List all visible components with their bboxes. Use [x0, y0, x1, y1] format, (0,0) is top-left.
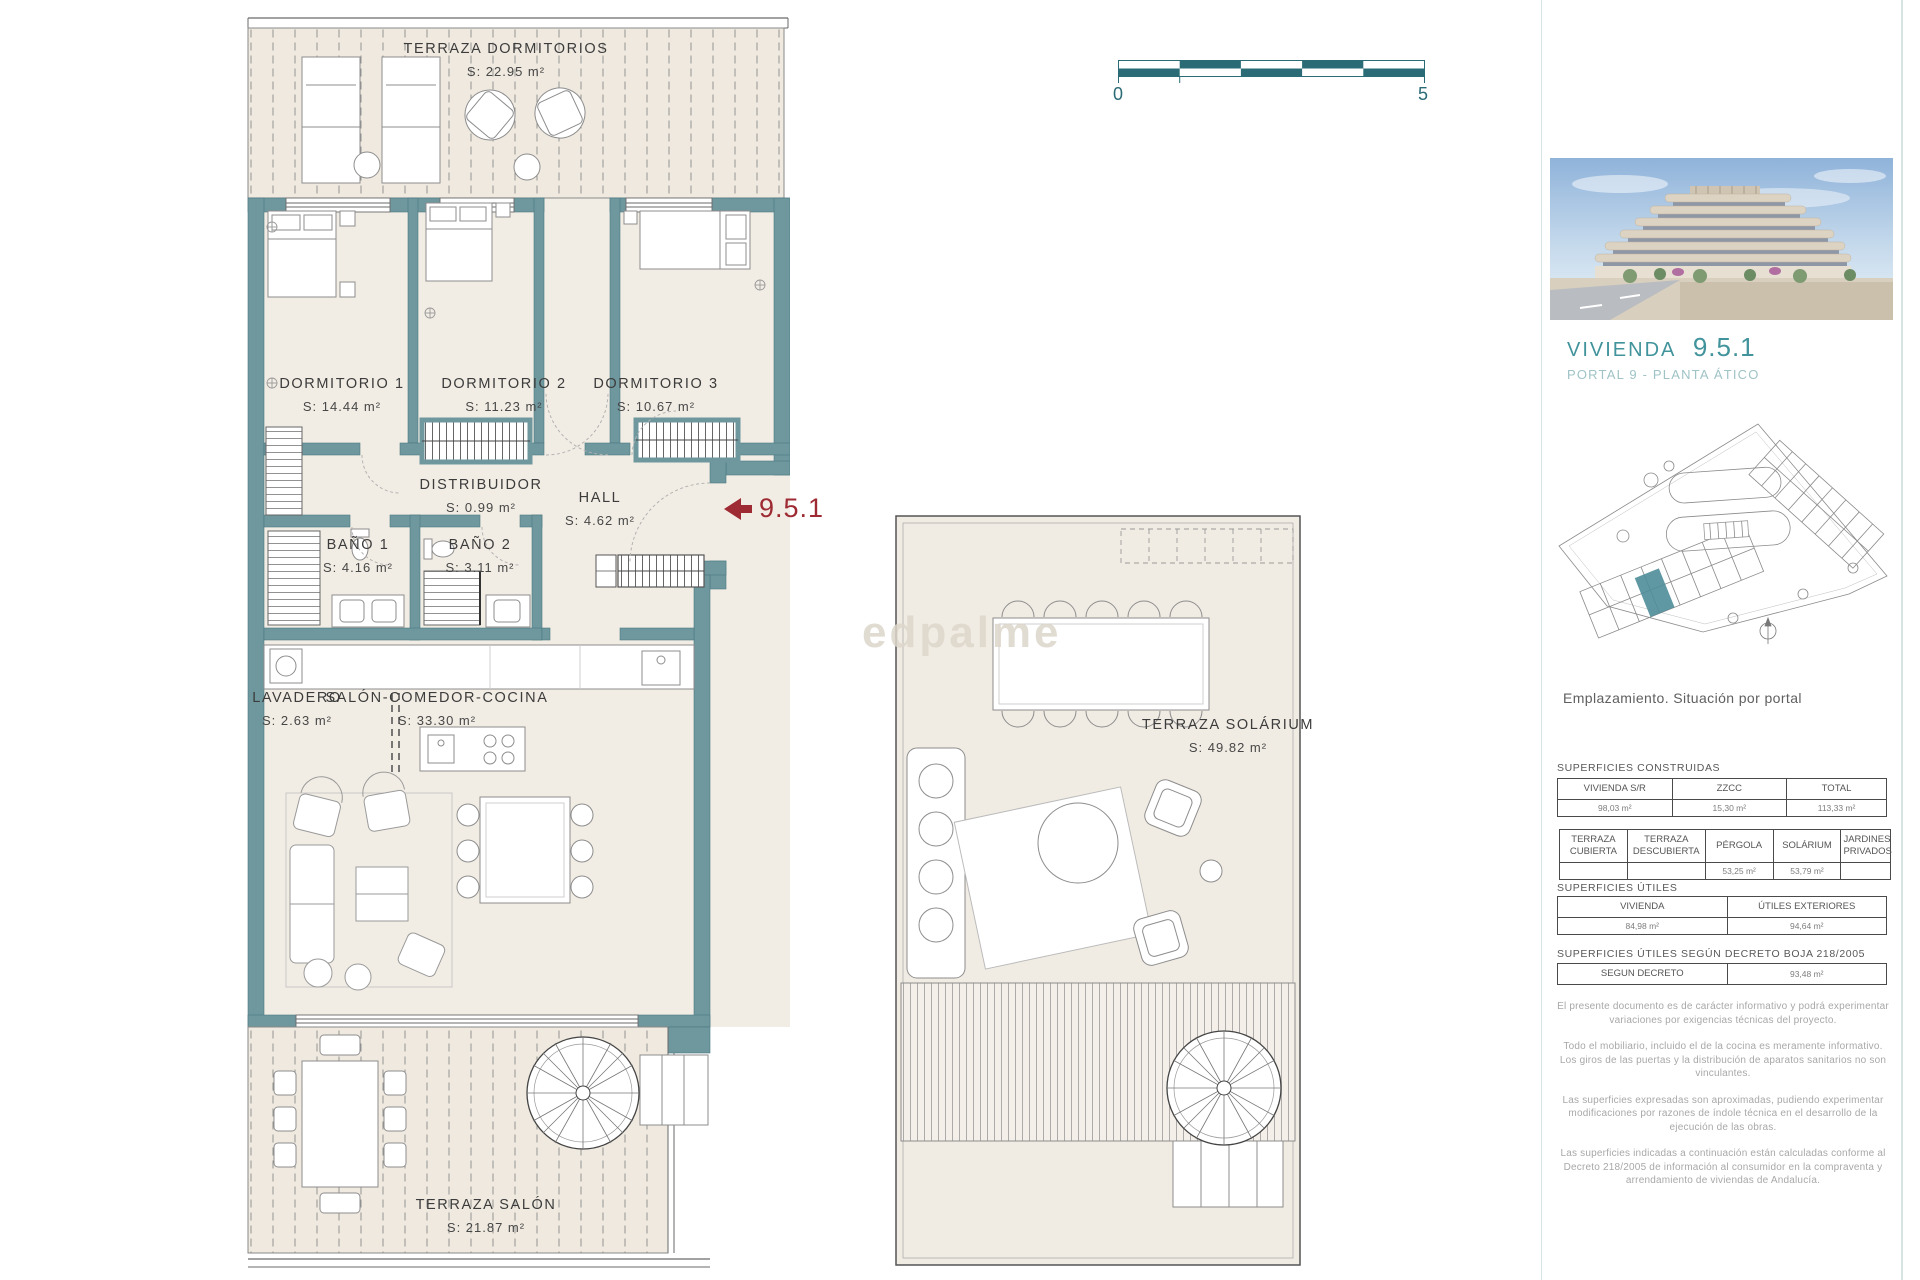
building-photo	[1550, 158, 1893, 320]
room-label-terraza-dormitorios: TERRAZA DORMITORIOS S: 22.95 m²	[404, 42, 609, 78]
solarium-bench	[1173, 1141, 1283, 1207]
entrance-marker: 9.5.1	[724, 493, 824, 524]
room-label-hall: HALL S: 4.62 m²	[565, 491, 635, 527]
table-header-cell: JARDINES PRIVADOS	[1841, 830, 1891, 863]
room-label-dormitorio-3: DORMITORIO 3 S: 10.67 m²	[593, 377, 718, 413]
room-label-terraza-salon: TERRAZA SALÓN S: 21.87 m²	[416, 1198, 557, 1234]
section-title-decreto: SUPERFICIES ÚTILES SEGÚN DECRETO BOJA 21…	[1557, 948, 1865, 960]
table-row: TERRAZA CUBIERTA TERRAZA DESCUBIERTA PÉR…	[1560, 830, 1891, 863]
disclaimer-paragraph: Las superficies expresadas son aproximad…	[1554, 1094, 1892, 1135]
main-floor-plan	[240, 15, 790, 1271]
table-value-cell: 53,25 m²	[1705, 862, 1773, 879]
table-header-cell: VIVIENDA	[1558, 897, 1728, 918]
room-label-dormitorio-1: DORMITORIO 1 S: 14.44 m²	[279, 377, 404, 413]
scale-min-label: 0	[1113, 84, 1123, 105]
scale-bar: 0 5	[1118, 58, 1425, 110]
unit-subtitle: PORTAL 9 - PLANTA ÁTICO	[1567, 368, 1760, 381]
table-header-cell: VIVIENDA S/R	[1558, 779, 1673, 800]
room-label-salon: SALÓN-COMEDOR-COCINA S: 33.30 m²	[326, 691, 549, 727]
site-plan-caption: Emplazamiento. Situación por portal	[1563, 690, 1802, 706]
scale-max-label: 5	[1418, 84, 1428, 105]
room-label-bano-1: BAÑO 1 S: 4.16 m²	[323, 538, 393, 574]
section-title-construidas: SUPERFICIES CONSTRUIDAS	[1557, 762, 1720, 774]
sidebar-left-border	[1541, 0, 1542, 1280]
table-row: VIVIENDA ÚTILES EXTERIORES	[1558, 897, 1887, 918]
table-header-cell: SEGUN DECRETO	[1558, 964, 1728, 985]
unit-title: VIVIENDA	[1567, 340, 1676, 360]
sheet-right-border	[1901, 0, 1903, 1280]
plan-sheet: { "scale_bar": { "min": "0", "max": "5" …	[0, 0, 1920, 1280]
disclaimer-block: El presente documento es de carácter inf…	[1554, 1000, 1892, 1201]
entrance-arrow-tail	[741, 505, 752, 513]
salon-window	[296, 1015, 638, 1027]
table-row: 98,03 m² 15,30 m² 113,33 m²	[1558, 799, 1887, 816]
room-label-terraza-solarium: TERRAZA SOLÁRIUM S: 49.82 m²	[1142, 718, 1314, 754]
table-value-cell: 53,79 m²	[1773, 862, 1841, 879]
kitchen-island	[420, 727, 525, 771]
table-construidas-2: TERRAZA CUBIERTA TERRAZA DESCUBIERTA PÉR…	[1559, 829, 1891, 880]
unit-number: 9.5.1	[1693, 334, 1756, 360]
entrance-unit-number: 9.5.1	[759, 493, 824, 524]
watermark: edpalme	[862, 608, 1062, 658]
table-value-cell: 113,33 m²	[1787, 799, 1887, 816]
table-header-cell: ÚTILES EXTERIORES	[1727, 897, 1887, 918]
table-row: 84,98 m² 94,64 m²	[1558, 917, 1887, 934]
entrance-arrow-icon	[724, 498, 741, 520]
site-plan	[1553, 418, 1895, 650]
room-label-distribuidor: DISTRIBUIDOR S: 0.99 m²	[419, 478, 542, 514]
spiral-stair	[527, 1037, 639, 1149]
section-title-utiles: SUPERFICIES ÚTILES	[1557, 882, 1678, 894]
scale-bar-graphic	[1118, 58, 1425, 84]
table-header-cell: TERRAZA DESCUBIERTA	[1627, 830, 1705, 863]
table-value-cell	[1560, 862, 1628, 879]
table-value-cell: 93,48 m²	[1727, 964, 1887, 985]
table-row: 53,25 m² 53,79 m²	[1560, 862, 1891, 879]
table-row: VIVIENDA S/R ZZCC TOTAL	[1558, 779, 1887, 800]
compass-icon	[1760, 618, 1776, 644]
dining-set	[457, 797, 593, 903]
disclaimer-paragraph: Todo el mobiliario, incluido el de la co…	[1554, 1040, 1892, 1081]
table-value-cell	[1627, 862, 1705, 879]
table-value-cell: 84,98 m²	[1558, 917, 1728, 934]
unit-title-block: VIVIENDA 9.5.1 PORTAL 9 - PLANTA ÁTICO	[1567, 334, 1760, 381]
table-header-cell: PÉRGOLA	[1705, 830, 1773, 863]
table-value-cell: 94,64 m²	[1727, 917, 1887, 934]
table-header-cell: SOLÁRIUM	[1773, 830, 1841, 863]
table-construidas-1: VIVIENDA S/R ZZCC TOTAL 98,03 m² 15,30 m…	[1557, 778, 1887, 817]
table-value-cell	[1841, 862, 1891, 879]
disclaimer-paragraph: El presente documento es de carácter inf…	[1554, 1000, 1892, 1027]
table-value-cell: 98,03 m²	[1558, 799, 1673, 816]
table-row: SEGUN DECRETO 93,48 m²	[1558, 964, 1887, 985]
room-label-bano-2: BAÑO 2 S: 3.11 m²	[445, 538, 514, 574]
table-header-cell: TERRAZA CUBIERTA	[1560, 830, 1628, 863]
disclaimer-paragraph: Las superficies indicadas a continuación…	[1554, 1147, 1892, 1188]
table-value-cell: 15,30 m²	[1672, 799, 1787, 816]
table-utiles: VIVIENDA ÚTILES EXTERIORES 84,98 m² 94,6…	[1557, 896, 1887, 935]
table-header-cell: TOTAL	[1787, 779, 1887, 800]
table-header-cell: ZZCC	[1672, 779, 1787, 800]
table-decreto: SEGUN DECRETO 93,48 m²	[1557, 963, 1887, 985]
room-label-dormitorio-2: DORMITORIO 2 S: 11.23 m²	[441, 377, 566, 413]
solarium-spiral-stair	[1167, 1031, 1281, 1145]
